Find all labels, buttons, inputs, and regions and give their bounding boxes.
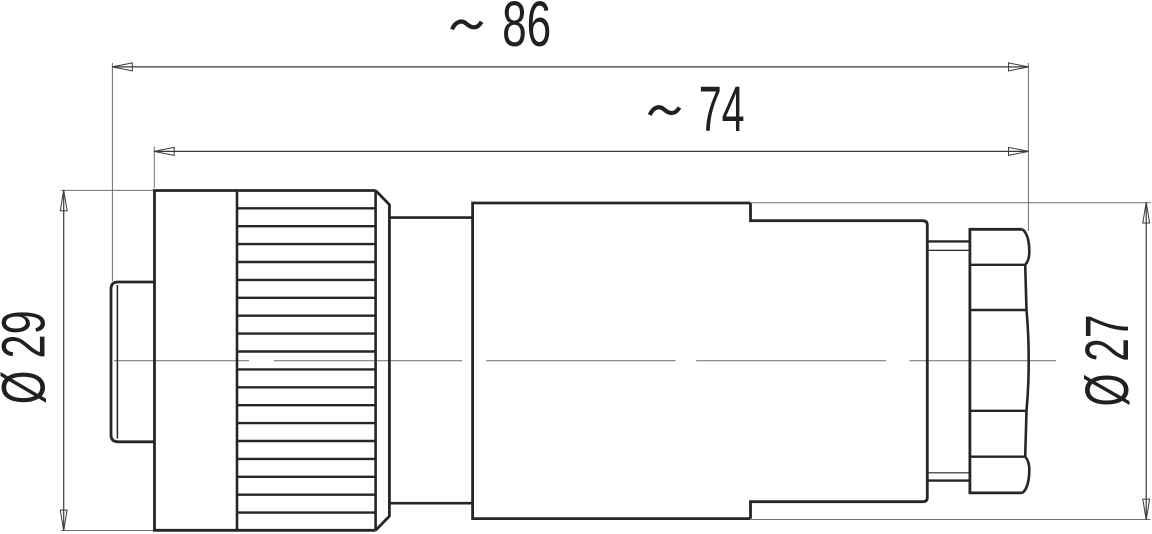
svg-text:74: 74 (699, 74, 745, 145)
svg-text:Ø 27: Ø 27 (1073, 315, 1142, 407)
svg-text:Ø 29: Ø 29 (0, 310, 58, 404)
svg-text:86: 86 (502, 0, 551, 60)
